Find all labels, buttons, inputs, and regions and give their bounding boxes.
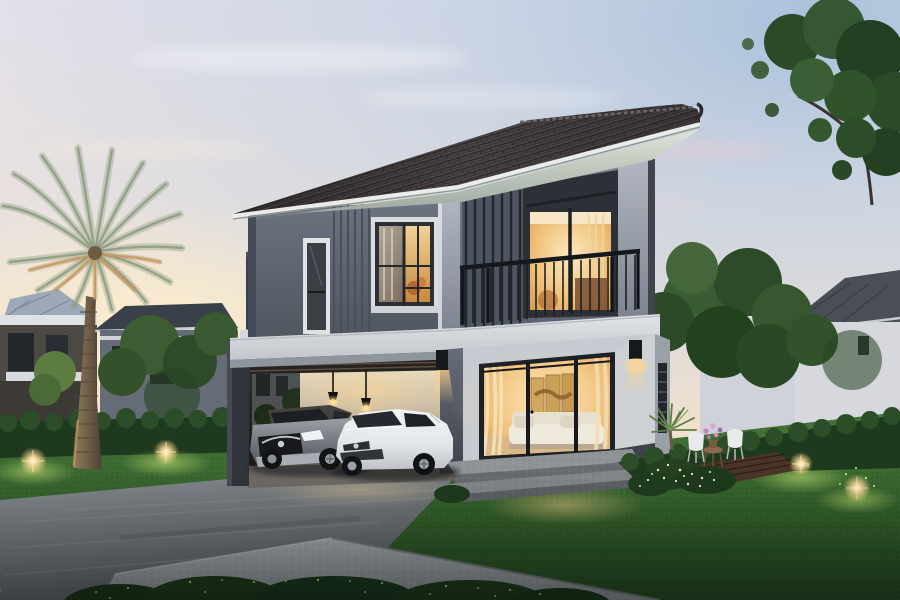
- balcony-door: [303, 238, 330, 334]
- suv-badge: [278, 441, 284, 447]
- balcony-bedroom-window: [523, 170, 618, 318]
- hatchback-badge: [353, 443, 358, 448]
- bottom-vignette: [0, 470, 900, 600]
- scene-canvas: [0, 0, 900, 600]
- suv-wheel: [262, 449, 282, 469]
- triptych-painting: [531, 374, 574, 415]
- sofa: [509, 412, 604, 449]
- flower-pot: [709, 440, 717, 448]
- living-room-glass-door: [479, 350, 615, 462]
- dusk-house-rendering: [0, 0, 900, 600]
- garden-light: [153, 439, 179, 465]
- bedroom-window-middle: [371, 217, 438, 313]
